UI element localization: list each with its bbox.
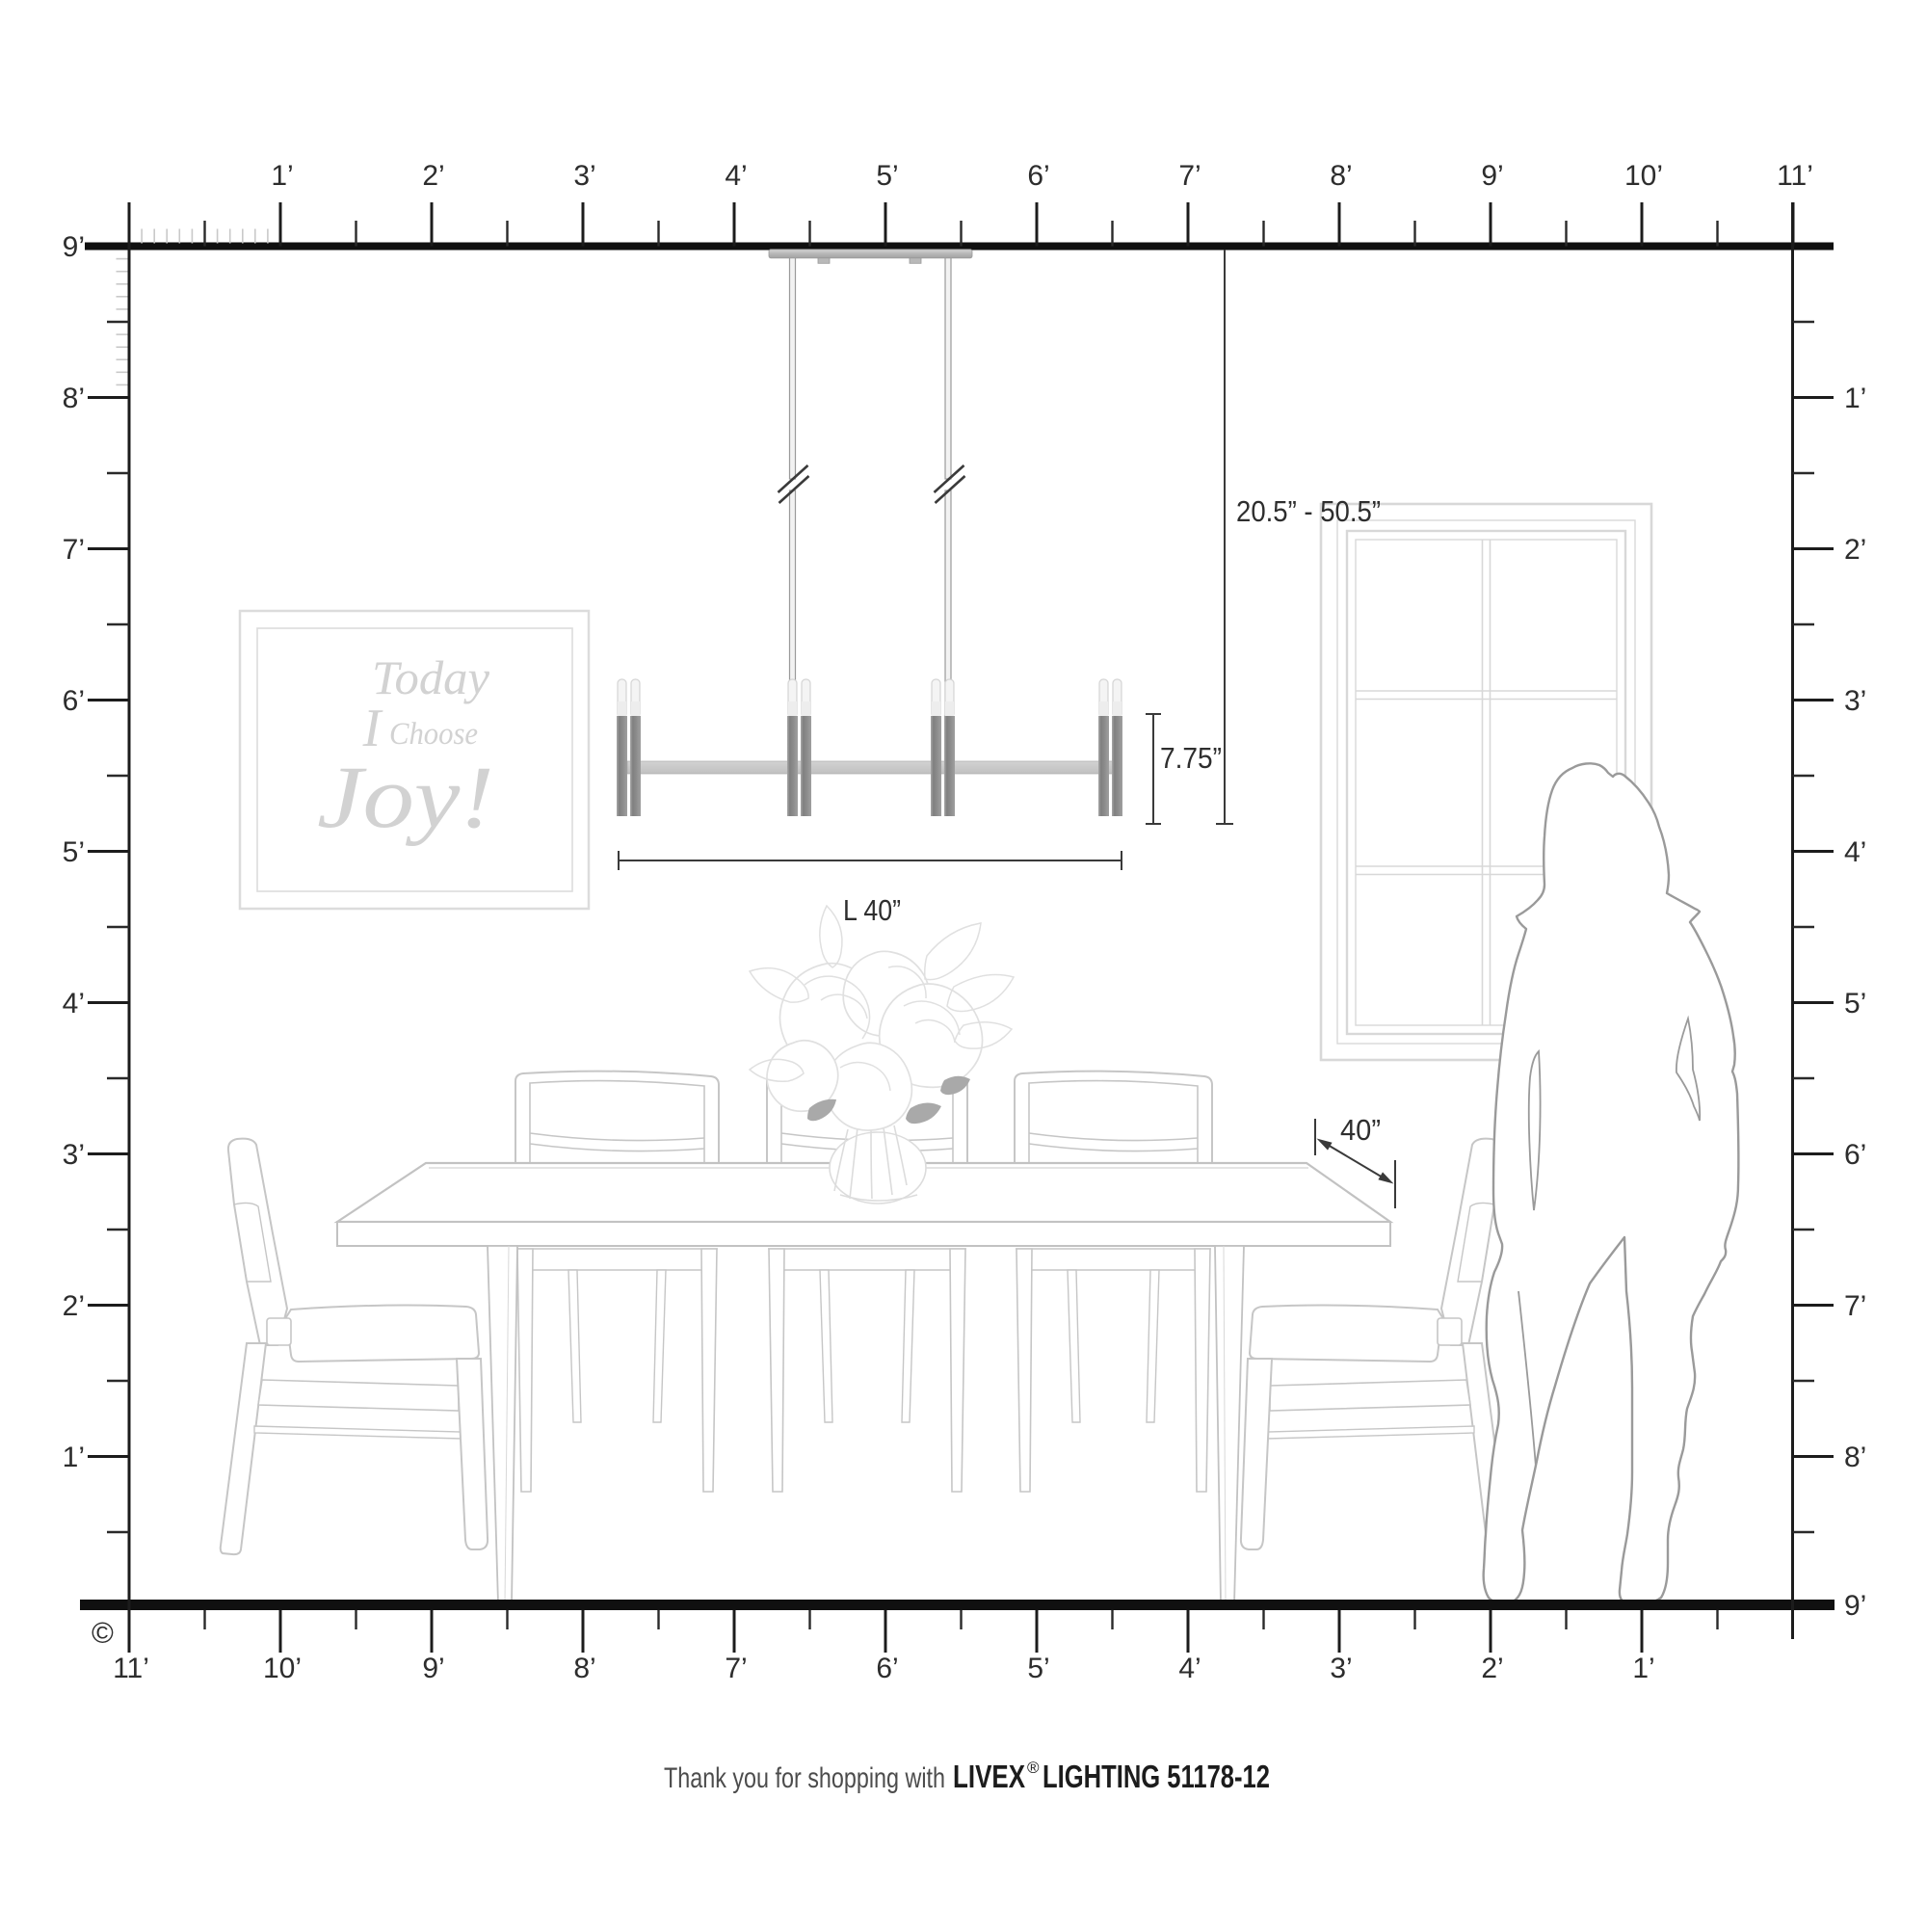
svg-text:©: © xyxy=(92,1616,114,1650)
svg-text:4’: 4’ xyxy=(1844,836,1866,868)
svg-text:1’: 1’ xyxy=(271,160,293,192)
svg-text:4’: 4’ xyxy=(1178,1653,1201,1684)
svg-text:10’: 10’ xyxy=(263,1653,302,1684)
svg-text:3’: 3’ xyxy=(1330,1653,1352,1684)
svg-text:2’: 2’ xyxy=(422,160,444,192)
svg-text:L 40”: L 40” xyxy=(843,893,901,927)
svg-text:LIGHTING 51178-12: LIGHTING 51178-12 xyxy=(1043,1759,1270,1794)
svg-text:7.75”: 7.75” xyxy=(1160,741,1222,775)
svg-text:8’: 8’ xyxy=(1330,160,1352,192)
svg-text:7’: 7’ xyxy=(63,534,85,566)
svg-text:5’: 5’ xyxy=(63,836,85,868)
svg-text:8’: 8’ xyxy=(63,383,85,414)
svg-text:8’: 8’ xyxy=(1844,1442,1866,1473)
svg-text:20.5” - 50.5”: 20.5” - 50.5” xyxy=(1236,494,1381,528)
svg-text:9’: 9’ xyxy=(1844,1590,1866,1622)
svg-text:5’: 5’ xyxy=(1844,988,1866,1019)
svg-text:Thank you for shopping with: Thank you for shopping with xyxy=(664,1762,945,1794)
svg-text:2’: 2’ xyxy=(1481,1653,1503,1684)
svg-text:2’: 2’ xyxy=(63,1290,85,1322)
svg-text:Joy!: Joy! xyxy=(317,748,494,846)
svg-text:Choose: Choose xyxy=(389,717,478,752)
svg-text:5’: 5’ xyxy=(876,160,898,192)
svg-text:7’: 7’ xyxy=(1844,1290,1866,1322)
svg-text:11’: 11’ xyxy=(113,1653,149,1684)
svg-text:3’: 3’ xyxy=(573,160,595,192)
svg-text:4’: 4’ xyxy=(63,988,85,1019)
svg-text:®: ® xyxy=(1027,1759,1040,1777)
svg-text:9’: 9’ xyxy=(1481,160,1503,192)
svg-text:6’: 6’ xyxy=(63,685,85,717)
svg-text:10’: 10’ xyxy=(1624,160,1663,192)
svg-text:1’: 1’ xyxy=(1844,383,1866,414)
svg-text:9’: 9’ xyxy=(422,1653,444,1684)
svg-text:7’: 7’ xyxy=(725,1653,747,1684)
svg-text:6’: 6’ xyxy=(876,1653,898,1684)
svg-text:Today: Today xyxy=(372,650,490,704)
svg-text:6’: 6’ xyxy=(1027,160,1049,192)
svg-text:9’: 9’ xyxy=(63,231,85,263)
svg-text:6’: 6’ xyxy=(1844,1139,1866,1171)
svg-text:1’: 1’ xyxy=(1632,1653,1654,1684)
svg-text:3’: 3’ xyxy=(63,1139,85,1171)
svg-text:LIVEX: LIVEX xyxy=(953,1759,1025,1794)
svg-text:7’: 7’ xyxy=(1178,160,1201,192)
svg-text:3’: 3’ xyxy=(1844,685,1866,717)
svg-text:2’: 2’ xyxy=(1844,534,1866,566)
svg-text:4’: 4’ xyxy=(725,160,747,192)
svg-text:1’: 1’ xyxy=(63,1442,85,1473)
svg-text:8’: 8’ xyxy=(573,1653,595,1684)
svg-text:40”: 40” xyxy=(1340,1113,1381,1147)
svg-text:5’: 5’ xyxy=(1027,1653,1049,1684)
svg-text:11’: 11’ xyxy=(1777,160,1813,192)
